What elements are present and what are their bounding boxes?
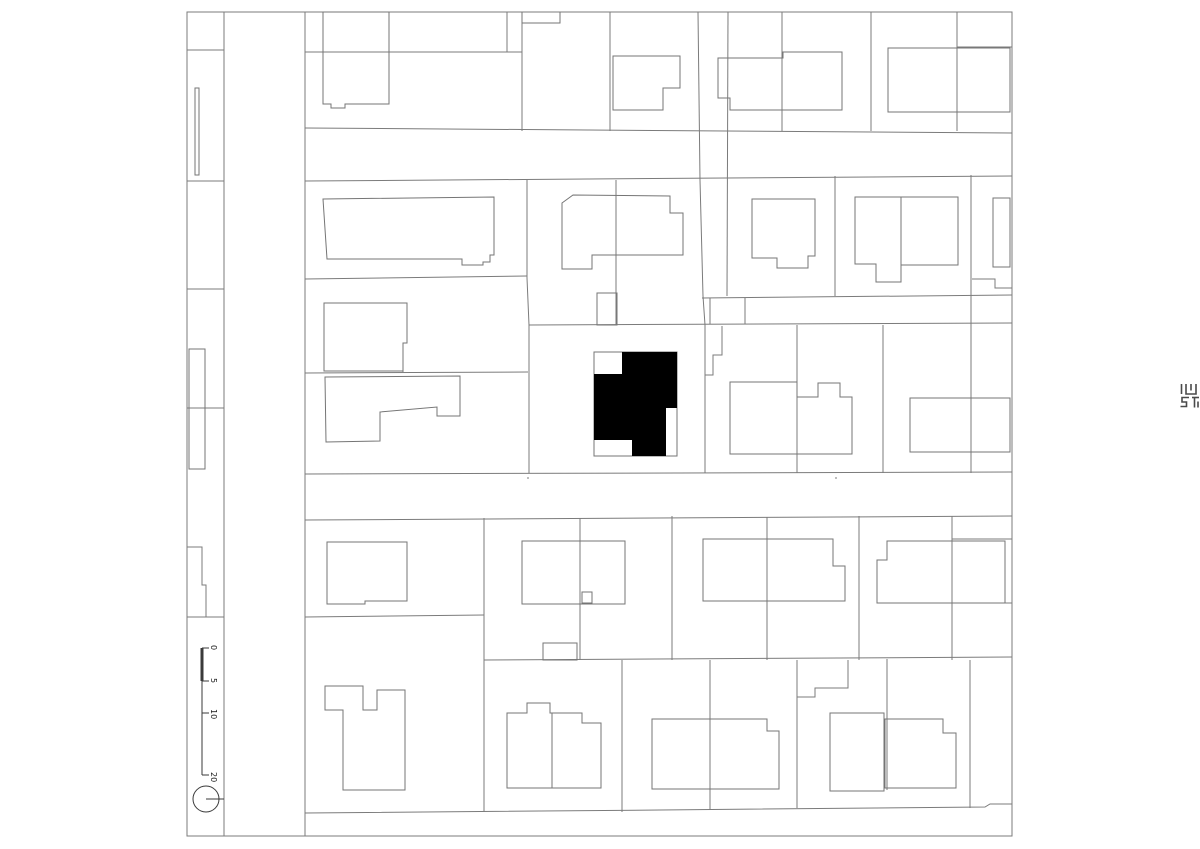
bottom-block-buildings	[325, 539, 1005, 791]
bottom-block-parcels	[305, 516, 1012, 813]
scale-label-5: 5	[209, 678, 218, 683]
scale-label-10: 10	[209, 709, 218, 719]
north-marker-icon	[193, 786, 224, 812]
scale-bar: 0 5 10 20	[202, 645, 218, 782]
scale-label-20: 20	[209, 772, 218, 782]
scale-label-0: 0	[209, 645, 218, 650]
top-block-buildings	[323, 12, 1010, 112]
site-plan-drawing: 0 5 10 20	[0, 0, 1200, 849]
subject-building-fill	[594, 352, 677, 456]
top-block-parcels	[305, 12, 1012, 131]
left-strip-parcels	[187, 50, 224, 617]
publisher-logo-icon	[1181, 384, 1200, 408]
subject-building	[594, 352, 677, 456]
site-plan-page: 0 5 10 20	[0, 0, 1200, 849]
